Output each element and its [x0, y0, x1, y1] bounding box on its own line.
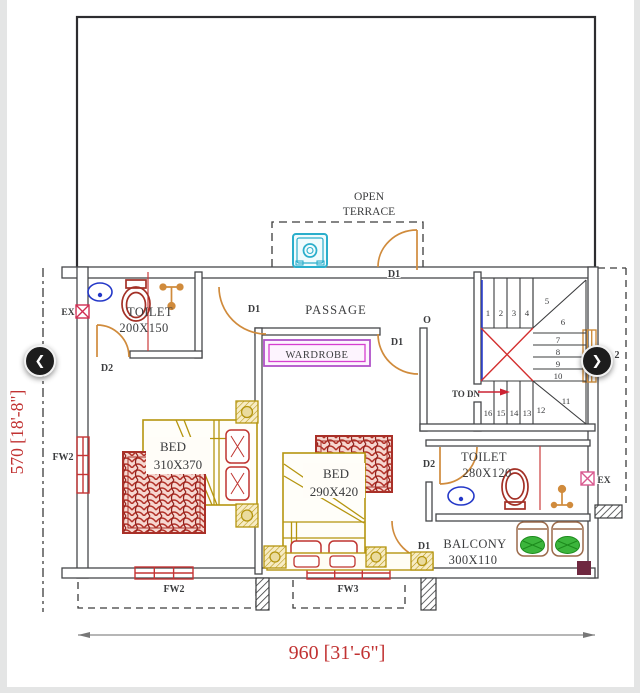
svg-text:14: 14: [510, 408, 519, 418]
terrace-door: [378, 230, 417, 270]
wardrobe-label: WARDROBE: [286, 350, 349, 361]
toilet2-size: 280X120: [462, 466, 511, 480]
floor-plan-drawing: 1 2 3 4 5 6 7 8 9 10 11 12 13 14 15 16 T…: [0, 0, 640, 693]
window-label-fw2-bottom: FW2: [163, 584, 184, 595]
stair-landing-x: [481, 328, 533, 381]
passage-label: PASSAGE: [305, 303, 366, 317]
exhaust-label-right: EX: [597, 476, 610, 486]
chevron-right-icon: ❯: [592, 355, 603, 368]
shower-icon: [552, 486, 573, 508]
bed1-label: BED: [160, 439, 186, 454]
dimension-height-text: 570 [18'-8"]: [7, 390, 27, 475]
window-label-fw3: FW3: [337, 584, 358, 595]
terrace-label-1: OPEN: [354, 191, 385, 203]
svg-text:7: 7: [556, 335, 561, 345]
bed2-label: BED: [323, 466, 349, 481]
svg-text:2: 2: [499, 308, 503, 318]
wardrobe: WARDROBE: [264, 340, 370, 366]
staircase: 1 2 3 4 5 6 7 8 9 10 11 12 13 14 15 16 T…: [452, 278, 586, 424]
svg-text:11: 11: [562, 396, 570, 406]
svg-text:12: 12: [537, 405, 546, 415]
to-dn-label: TO DN: [452, 389, 481, 399]
terrace-label-2: TERRACE: [343, 206, 395, 218]
planter-icon: [517, 522, 548, 556]
svg-text:8: 8: [556, 347, 561, 357]
door-label-d2-toilet2: D2: [423, 459, 435, 470]
svg-text:5: 5: [545, 296, 550, 306]
svg-text:9: 9: [556, 359, 561, 369]
balcony-label: BALCONY: [443, 537, 506, 551]
door-label-d1-bedroom2: D1: [391, 337, 403, 348]
svg-text:1: 1: [486, 308, 490, 318]
door-label-d2-toilet1: D2: [101, 363, 113, 374]
upper-floor-outline: [77, 17, 595, 270]
floor-plan-page: 1 2 3 4 5 6 7 8 9 10 11 12 13 14 15 16 T…: [0, 0, 640, 693]
corner-column: [577, 561, 591, 575]
dimension-bottom: 960 [31'-6"]: [78, 632, 595, 664]
exhaust-label-left: EX: [61, 308, 74, 318]
door-label-d1-balcony: D1: [418, 541, 430, 552]
exhaust-fan-icon: [76, 305, 89, 318]
stair-window-label-partial: 2: [615, 350, 620, 361]
svg-text:15: 15: [497, 408, 506, 418]
door-label-d1-terrace: D1: [388, 269, 400, 280]
svg-text:3: 3: [512, 308, 517, 318]
svg-text:10: 10: [554, 371, 563, 381]
opening-label: O: [423, 315, 431, 326]
carousel-prev-button[interactable]: ❮: [24, 345, 56, 377]
window-label-fw2-left: FW2: [52, 452, 73, 463]
basin-icon: [448, 487, 474, 505]
svg-text:13: 13: [523, 408, 532, 418]
svg-text:4: 4: [525, 308, 530, 318]
svg-text:6: 6: [561, 317, 566, 327]
washing-machine-icon: [293, 234, 327, 267]
carousel-next-button[interactable]: ❯: [581, 345, 613, 377]
planter-icon: [552, 522, 583, 556]
door-label-d1-bedroom1: D1: [248, 304, 260, 315]
dimension-width-text: 960 [31'-6"]: [289, 642, 386, 664]
toilet2-label: TOILET: [461, 450, 507, 464]
toilet1-size: 200X150: [119, 321, 168, 335]
balcony-size: 300X110: [449, 553, 498, 567]
chevron-left-icon: ❮: [35, 355, 46, 368]
svg-text:16: 16: [484, 408, 493, 418]
planter-icons: [517, 522, 583, 556]
exhaust-fan-icon: [581, 472, 594, 485]
bed1-size: 310X370: [154, 457, 202, 472]
basin-icon: [88, 283, 112, 301]
bed2-size: 290X420: [310, 484, 358, 499]
toilet1-label: TOILET: [127, 305, 173, 319]
